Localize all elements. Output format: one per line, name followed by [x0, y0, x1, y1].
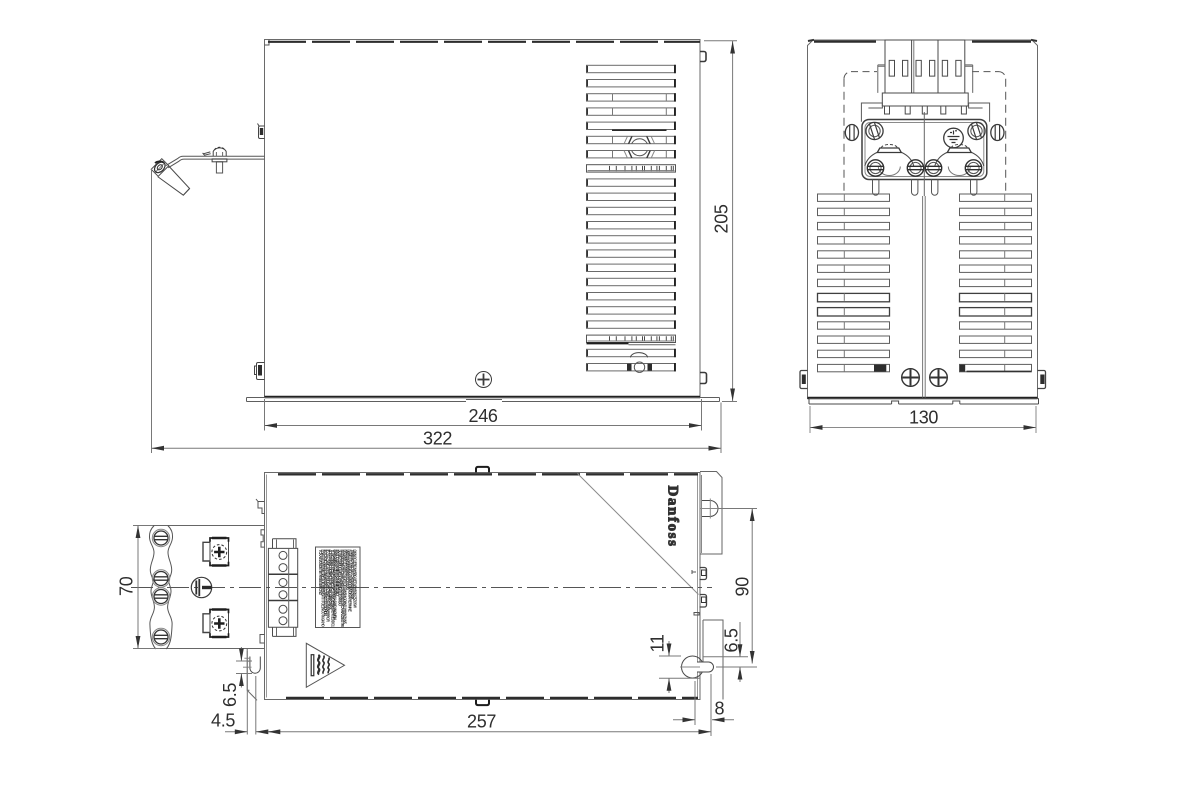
- svg-text:205: 205: [712, 204, 732, 233]
- svg-text:322: 322: [423, 429, 452, 449]
- svg-text:90: 90: [733, 577, 753, 597]
- svg-text:11: 11: [648, 634, 668, 652]
- svg-text:4.5: 4.5: [211, 711, 235, 731]
- svg-text:130: 130: [909, 408, 938, 428]
- svg-text:8: 8: [715, 699, 725, 719]
- svg-text:246: 246: [469, 406, 498, 426]
- svg-text:Danfoss: Danfoss: [665, 486, 681, 548]
- svg-text:6.5: 6.5: [220, 683, 240, 707]
- svg-text:70: 70: [117, 576, 137, 596]
- svg-text:TCKAEVD5DETBTRXEESB0CW2: TCKAEVD5DETBTRXEESB0CW2: [317, 550, 323, 596]
- svg-text:257: 257: [467, 712, 496, 732]
- svg-text:6.5: 6.5: [722, 628, 742, 652]
